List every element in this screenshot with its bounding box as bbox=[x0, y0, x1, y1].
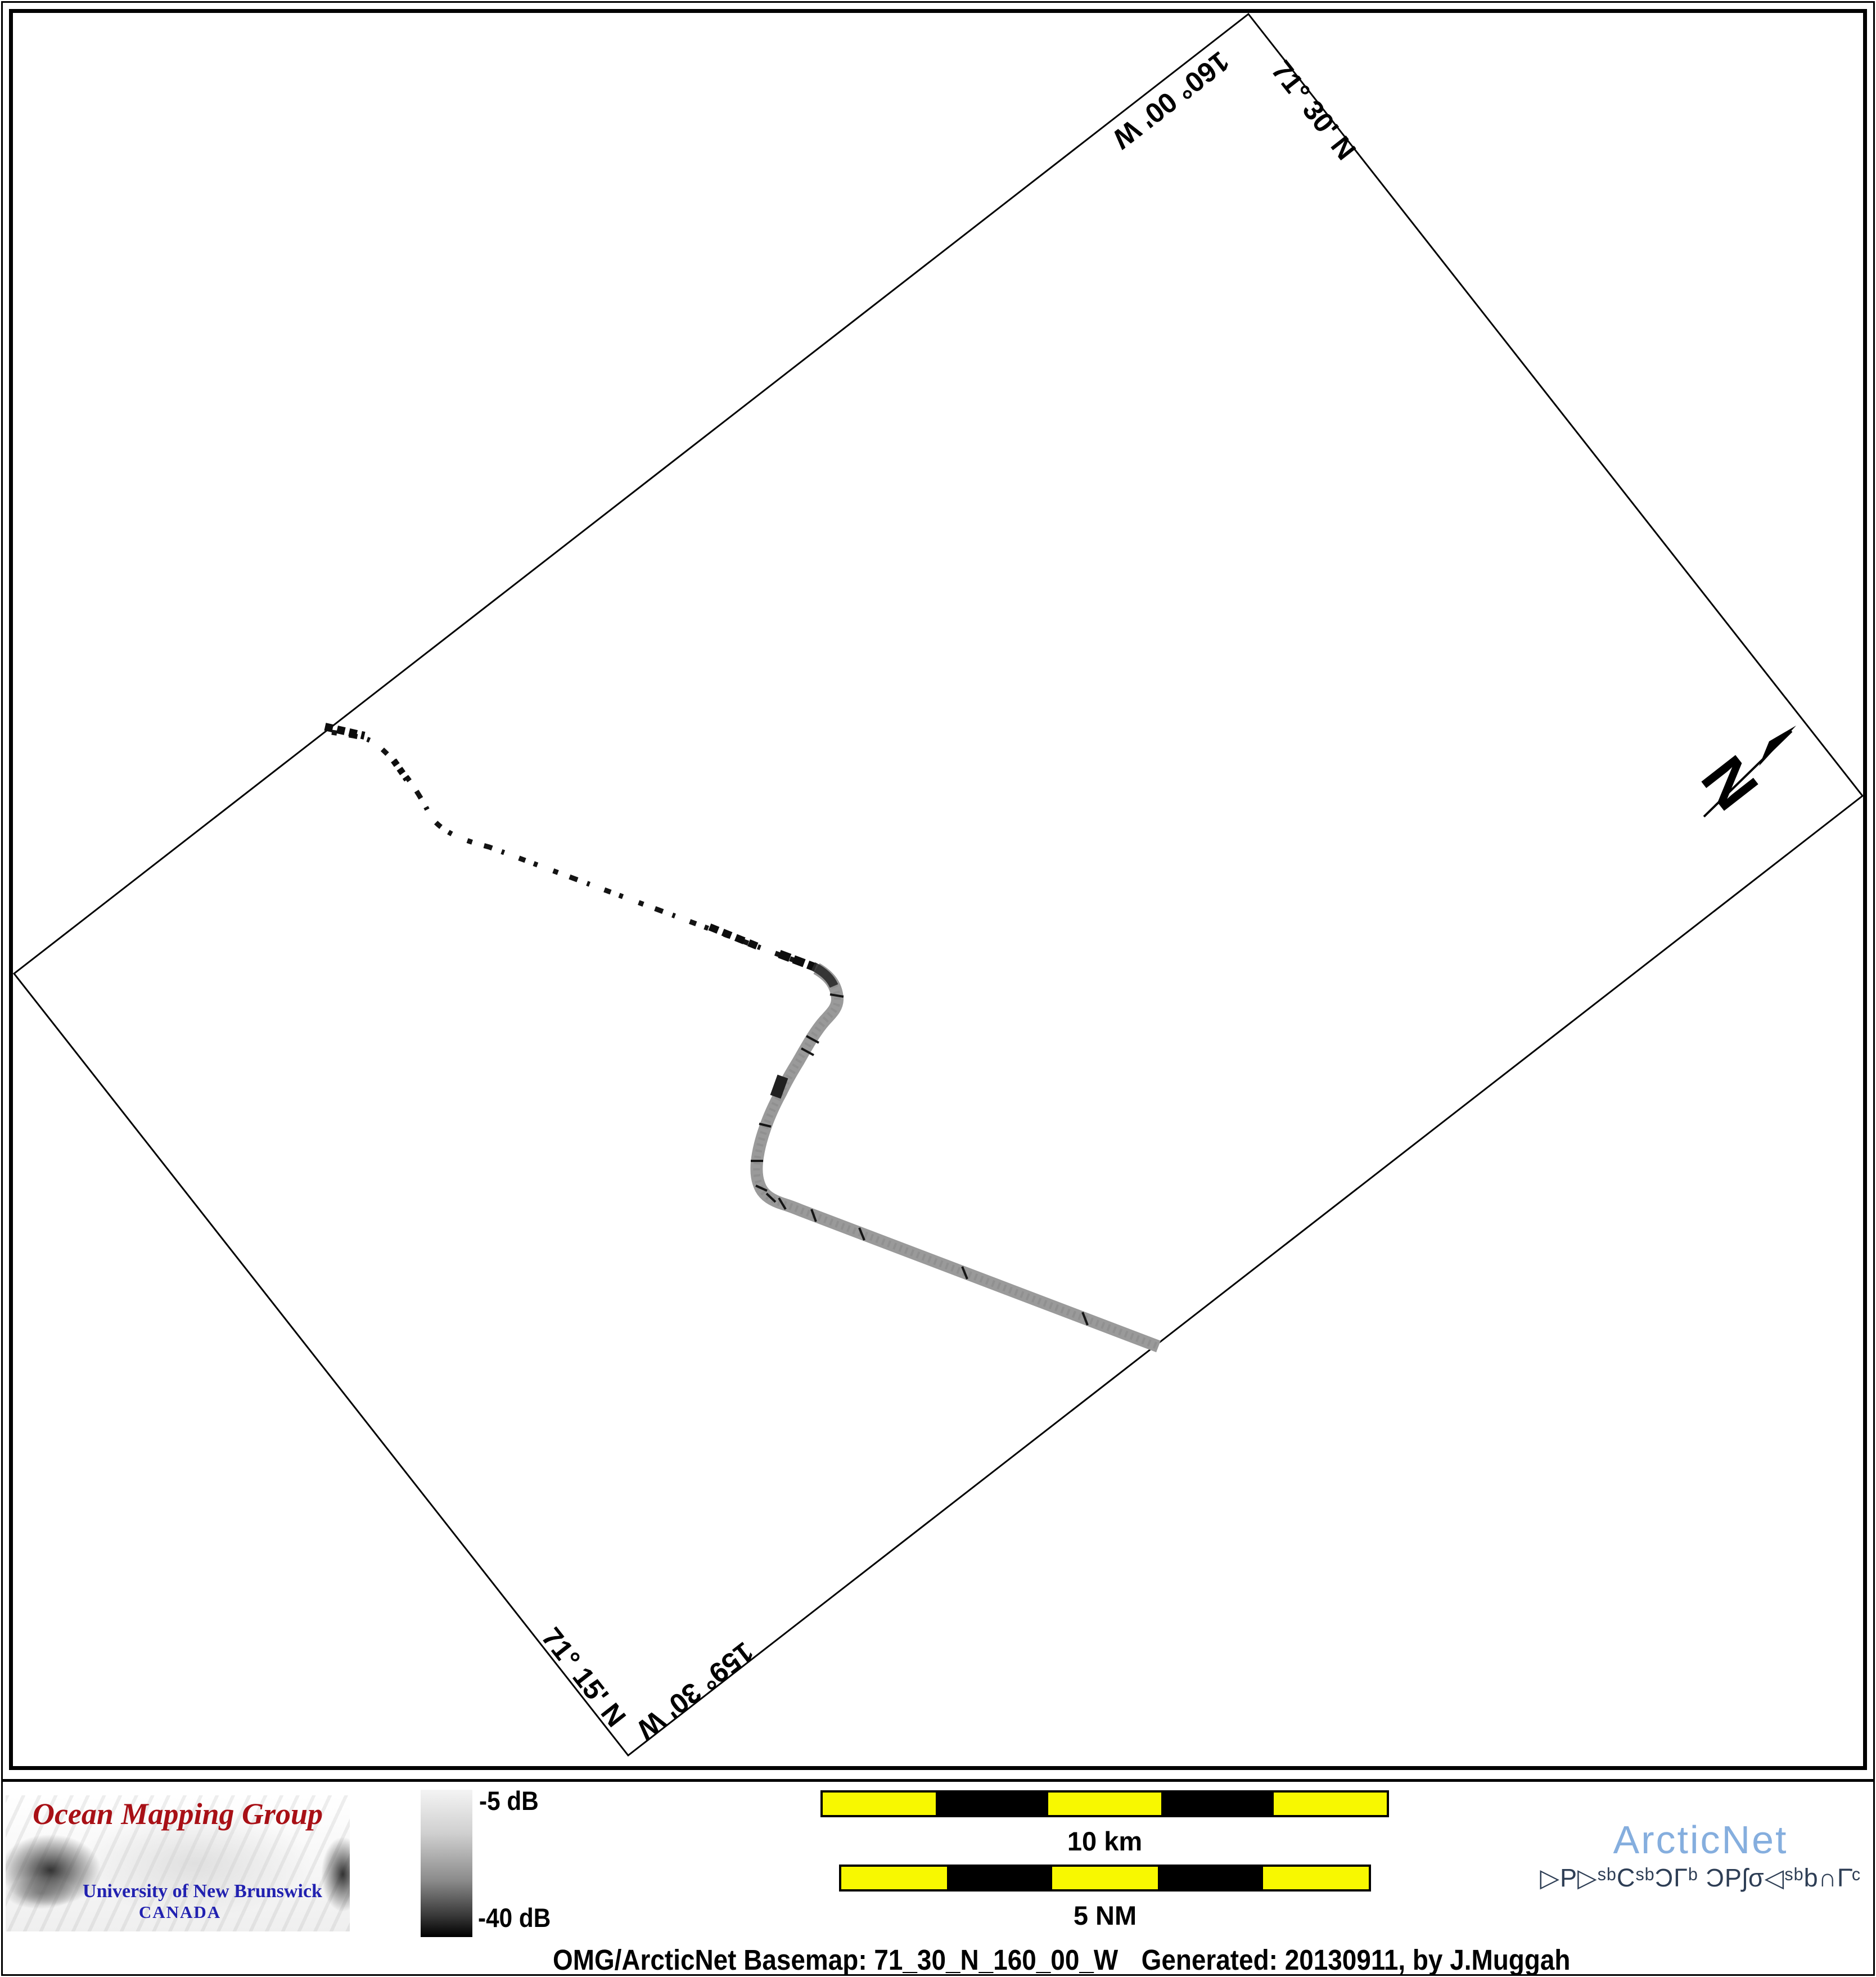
map-caption: OMG/ArcticNet Basemap: 71_30_N_160_00_WG… bbox=[553, 1943, 1683, 1976]
arcticnet-logo-name: ArcticNet bbox=[1527, 1820, 1874, 1859]
longitude-label-top: 160° 00' W bbox=[1106, 46, 1235, 155]
longitude-label-bottom: 159° 30' W bbox=[630, 1636, 759, 1746]
scalebar-segment bbox=[841, 1867, 947, 1889]
scalebar-segment bbox=[936, 1793, 1049, 1815]
latitude-label-top: 71° 30' N bbox=[1265, 55, 1362, 165]
caption-condensed: OMG/ArcticNet Basemap: 71_30_N_160_00_WG… bbox=[553, 1943, 1570, 1976]
colorbar-min-text: -40 dB bbox=[478, 1902, 551, 1933]
scalebar-km bbox=[820, 1790, 1389, 1817]
omg-logo-country: CANADA bbox=[56, 1902, 304, 1922]
latitude-label-bottom: 71° 15' N bbox=[535, 1622, 632, 1732]
scalebar-segment bbox=[1161, 1793, 1274, 1815]
map-canvas: N 160° 00' W 71° 30' N 71° 15' N 159° 30… bbox=[0, 0, 1876, 1772]
survey-track-cluster bbox=[779, 954, 815, 967]
scalebar-segment bbox=[1158, 1867, 1264, 1889]
colorbar-gradient bbox=[421, 1790, 472, 1937]
survey-track bbox=[325, 727, 1158, 1346]
caption-basemap: OMG/ArcticNet Basemap: 71_30_N_160_00_W bbox=[553, 1944, 1118, 1976]
scalebar-segment bbox=[823, 1793, 936, 1815]
footer-divider bbox=[1, 1779, 1875, 1782]
scalebar-segment bbox=[1274, 1793, 1387, 1815]
omg-logo-university: University of New Brunswick bbox=[56, 1881, 349, 1902]
omg-logo: Ocean Mapping Group University of New Br… bbox=[6, 1795, 350, 1931]
survey-track-dark-junction bbox=[813, 966, 834, 986]
page: N 160° 00' W 71° 30' N 71° 15' N 159° 30… bbox=[0, 0, 1876, 1977]
survey-track-ribbon bbox=[756, 969, 1158, 1346]
north-arrow: N bbox=[1688, 726, 1796, 822]
colorbar-min-label: -40 dB bbox=[478, 1902, 559, 1933]
survey-track-cluster bbox=[710, 927, 757, 946]
scalebar-nm-label: 5 NM bbox=[839, 1900, 1371, 1931]
survey-track-cluster bbox=[325, 727, 364, 736]
arcticnet-logo: ArcticNet ▷P▷ˢᵇCˢᵇƆΓᵇ ƆPʃσ◁ˢᵇb∩Γ̇ᶜ bbox=[1527, 1820, 1874, 1893]
scalebar-nm bbox=[839, 1865, 1371, 1892]
scalebar-km-label: 10 km bbox=[820, 1826, 1389, 1857]
map-boundary bbox=[14, 14, 1863, 1755]
scalebar-segment bbox=[1052, 1867, 1158, 1889]
graticule-labels: 160° 00' W 71° 30' N 71° 15' N 159° 30' … bbox=[535, 46, 1362, 1746]
colorbar-max-label: -5 dB bbox=[479, 1785, 545, 1816]
survey-track-dark-patch bbox=[775, 1077, 783, 1097]
survey-track-cluster bbox=[394, 760, 407, 780]
arcticnet-logo-inuktitut: ▷P▷ˢᵇCˢᵇƆΓᵇ ƆPʃσ◁ˢᵇb∩Γ̇ᶜ bbox=[1527, 1863, 1874, 1893]
survey-track-dashed bbox=[332, 732, 817, 969]
caption-generated: Generated: 20130911, by J.Muggah bbox=[1142, 1944, 1571, 1976]
scalebar-segment bbox=[1263, 1867, 1369, 1889]
omg-logo-title: Ocean Mapping Group bbox=[6, 1796, 350, 1831]
scalebar-segment bbox=[1048, 1793, 1161, 1815]
colorbar-max-text: -5 dB bbox=[479, 1785, 539, 1816]
north-arrow-letter: N bbox=[1688, 744, 1771, 823]
scalebar-segment bbox=[947, 1867, 1053, 1889]
